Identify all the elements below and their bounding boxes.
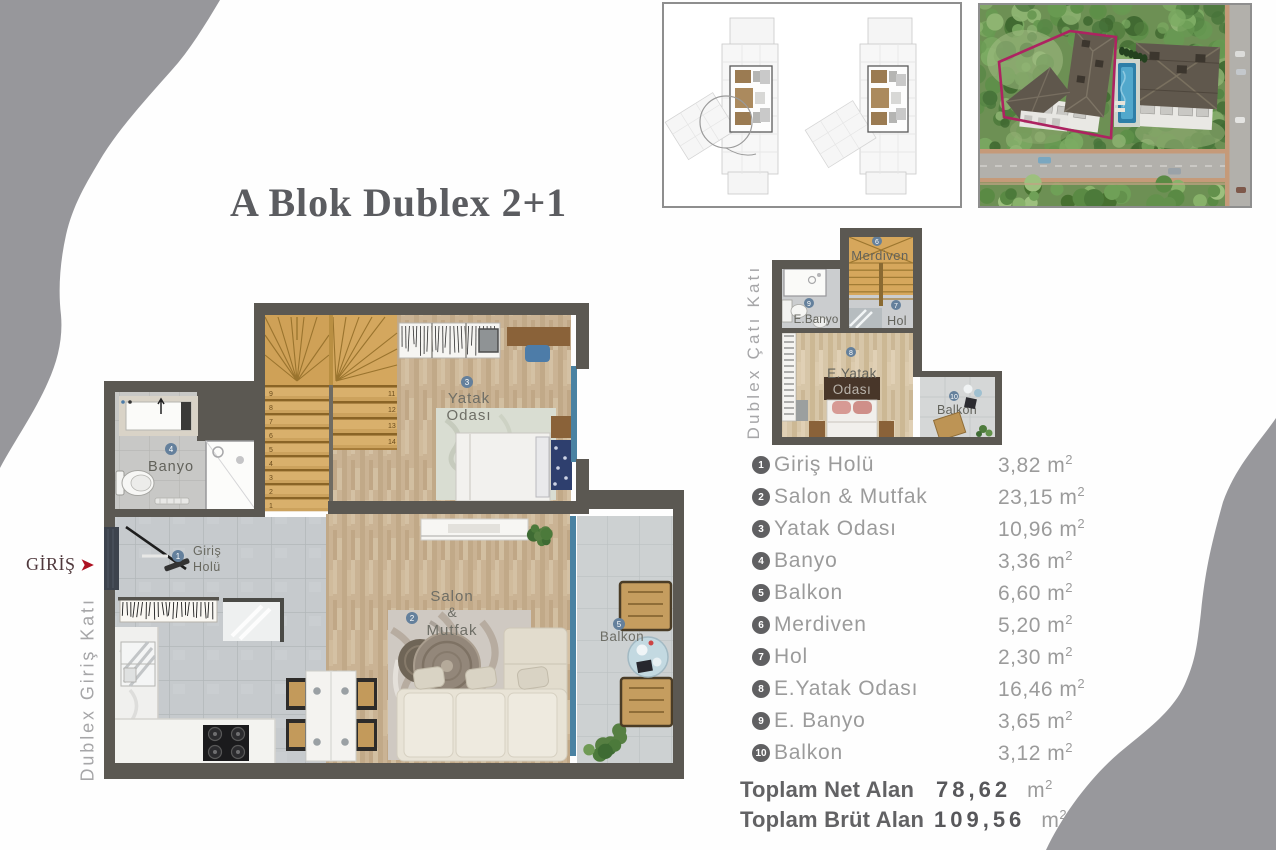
svg-text:Holü: Holü <box>193 560 221 574</box>
svg-text:Yatak: Yatak <box>448 390 490 407</box>
svg-text:Balkon: Balkon <box>600 629 644 644</box>
svg-text:E.Banyo: E.Banyo <box>794 314 839 326</box>
svg-text:Odası: Odası <box>446 407 491 424</box>
svg-text:5: 5 <box>269 447 273 454</box>
svg-text:6: 6 <box>875 239 879 246</box>
svg-text:Giriş: Giriş <box>193 544 221 558</box>
svg-text:8: 8 <box>269 405 273 412</box>
svg-text:Odası: Odası <box>833 382 872 397</box>
svg-text:Banyo: Banyo <box>148 459 194 475</box>
svg-text:7: 7 <box>269 419 273 426</box>
svg-text:6: 6 <box>269 433 273 440</box>
svg-text:11: 11 <box>388 391 395 398</box>
svg-text:5: 5 <box>617 620 622 629</box>
svg-text:Hol: Hol <box>887 314 907 328</box>
svg-text:4: 4 <box>169 445 174 454</box>
svg-text:3: 3 <box>465 378 470 387</box>
svg-text:3: 3 <box>269 475 273 482</box>
svg-text:E.Yatak: E.Yatak <box>827 366 877 381</box>
svg-text:4: 4 <box>269 461 273 468</box>
svg-text:2: 2 <box>269 489 273 496</box>
svg-text:13: 13 <box>388 423 396 430</box>
svg-text:9: 9 <box>269 391 273 398</box>
svg-text:9: 9 <box>807 301 811 308</box>
svg-text:10: 10 <box>950 394 958 401</box>
svg-text:Salon: Salon <box>430 588 473 605</box>
svg-text:7: 7 <box>894 303 898 310</box>
svg-text:&: & <box>447 604 457 620</box>
svg-text:2: 2 <box>410 614 415 623</box>
svg-text:14: 14 <box>388 439 396 446</box>
svg-text:1: 1 <box>269 503 273 510</box>
svg-text:Merdiven: Merdiven <box>851 248 908 263</box>
svg-text:8: 8 <box>849 350 853 357</box>
svg-text:12: 12 <box>388 407 396 414</box>
svg-text:1: 1 <box>176 552 181 561</box>
svg-text:Mutfak: Mutfak <box>426 622 477 639</box>
